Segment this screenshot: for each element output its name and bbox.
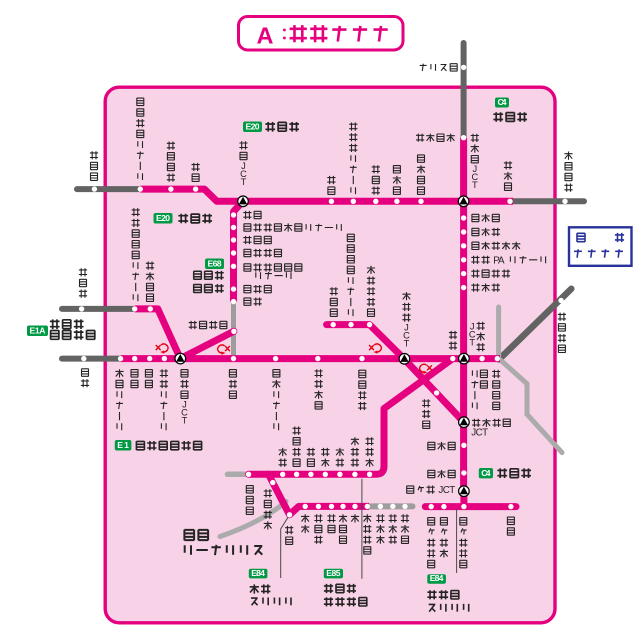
svg-text:E85: E85 <box>326 568 340 578</box>
svg-text:T: T <box>404 338 410 348</box>
svg-text:E20: E20 <box>246 121 260 131</box>
svg-text:JCT: JCT <box>471 427 488 438</box>
svg-text:T: T <box>182 416 188 426</box>
svg-text:E20: E20 <box>156 213 170 223</box>
svg-text:E1A: E1A <box>30 325 46 335</box>
svg-text:E84: E84 <box>430 573 444 583</box>
svg-text:PA: PA <box>493 255 505 266</box>
svg-text:E68: E68 <box>208 258 222 268</box>
svg-text:T: T <box>472 180 478 190</box>
svg-text:C4: C4 <box>498 97 507 107</box>
svg-text:T: T <box>469 338 475 348</box>
svg-text:E84: E84 <box>251 568 265 578</box>
svg-text:E1: E1 <box>117 440 129 450</box>
svg-text:C4: C4 <box>481 468 490 478</box>
svg-text:T: T <box>241 177 247 187</box>
svg-text:JCT: JCT <box>438 485 455 496</box>
svg-text:A: A <box>257 23 274 49</box>
